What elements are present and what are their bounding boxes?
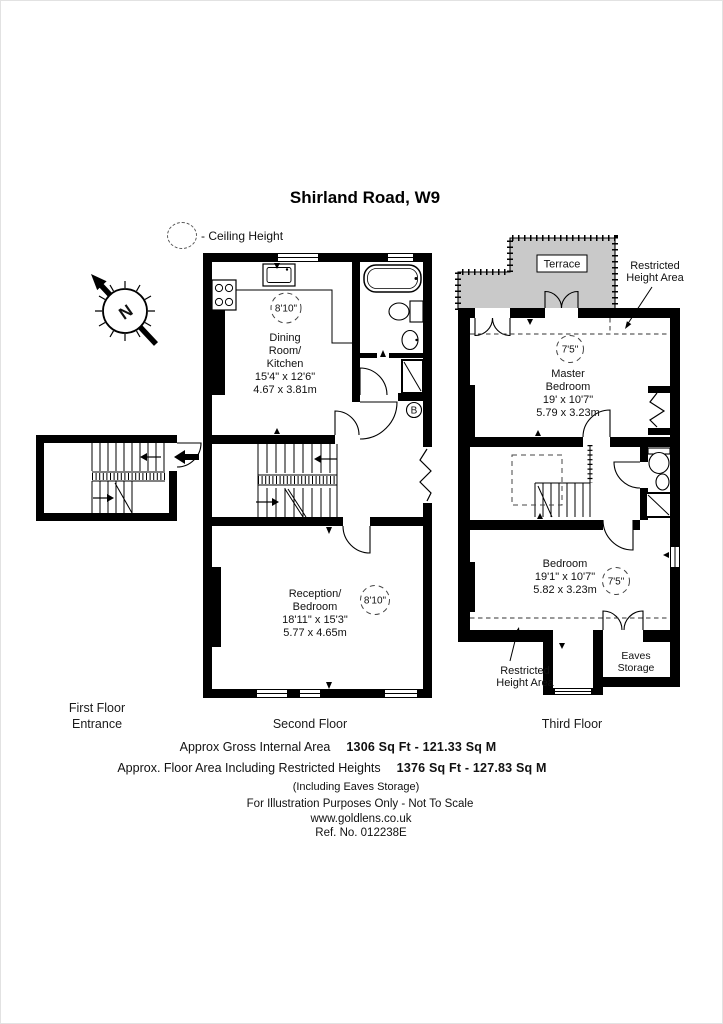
dining-room-label: Dining Room/ Kitchen 15'4" x 12'6" 4.67 … [253,332,317,396]
gross-area-value: 1306 Sq Ft - 121.33 Sq M [346,740,496,754]
svg-text:Bedroom: Bedroom [293,601,338,613]
gross-area-line: Approx Gross Internal Area1306 Sq Ft - 1… [180,740,497,754]
entrance-caption-line2: Entrance [69,716,125,732]
svg-text:Storage: Storage [618,662,655,674]
svg-text:Bedroom: Bedroom [543,558,588,570]
ceiling-height-legend-icon [167,222,197,249]
terrace-label: Terrace [544,259,581,271]
svg-text:Reception/: Reception/ [289,588,343,600]
third-floor-wall-break [648,386,670,435]
entrance-caption-line1: First Floor [69,700,125,716]
wall-markers [527,319,669,649]
bedroom-ceiling-height: 7'5" [603,568,630,595]
second-floor-stair-arrows [256,455,337,506]
svg-text:Dining: Dining [269,332,300,344]
svg-text:18'11" x 15'3": 18'11" x 15'3" [282,614,348,626]
compass-icon: N [78,256,173,361]
third-floor-caption: Third Floor [542,716,602,732]
svg-text:19'1" x 10'7": 19'1" x 10'7" [535,571,595,583]
toilet-icon [649,453,669,474]
svg-text:Restricted: Restricted [630,260,680,272]
svg-text:5.82 x 3.23m: 5.82 x 3.23m [533,584,597,596]
terrace: Terrace [458,238,615,310]
svg-text:8'10": 8'10" [364,596,387,607]
svg-text:15'4" x 12'6": 15'4" x 12'6" [255,371,315,383]
dining-ceiling-height: 8'10" [271,293,301,323]
reception-room-label: Reception/ Bedroom 18'11" x 15'3" 5.77 x… [282,588,348,639]
third-floor-bathroom [646,448,671,517]
restricted-area-label: Approx. Floor Area Including Restricted … [117,761,380,775]
svg-text:4.67 x 3.81m: 4.67 x 3.81m [253,384,317,396]
basin-icon [402,331,418,350]
second-floor-caption: Second Floor [273,716,347,732]
shower-icon [402,360,423,393]
floorplan-page: Shirland Road, W9 - Ceiling Height N [0,0,723,1024]
reference-number: Ref. No. 012238E [315,827,406,839]
including-eaves-note: (Including Eaves Storage) [293,781,420,793]
master-ceiling-height: 7'5" [557,336,584,363]
svg-text:Height Area: Height Area [496,677,554,689]
entrance-caption: First Floor Entrance [69,700,125,732]
eaves-storage-label: Eaves Storage [618,650,655,674]
master-bedroom-label: Master Bedroom 19' x 10'7" 5.79 x 3.23m [536,368,600,419]
gross-area-label: Approx Gross Internal Area [180,740,331,754]
entrance-stairs [92,443,165,513]
svg-text:Restricted: Restricted [500,665,550,677]
ceiling-height-legend-label: - Ceiling Height [201,229,283,243]
svg-text:8'10": 8'10" [275,304,298,315]
kitchen-sink-icon [263,264,295,286]
svg-text:Master: Master [551,368,585,380]
restricted-area-value: 1376 Sq Ft - 127.83 Sq M [397,761,547,775]
second-floor-wall-break [420,447,432,503]
svg-text:5.79 x 3.23m: 5.79 x 3.23m [536,407,600,419]
bedroom-label: Bedroom 19'1" x 10'7" 5.82 x 3.23m [533,558,597,596]
entrance-direction-arrow [174,450,199,464]
svg-text:7'5": 7'5" [608,577,625,588]
toilet-icon [389,301,423,322]
svg-text:Height Area: Height Area [626,272,684,284]
second-floor-plan: B 8' [203,253,432,698]
svg-text:Kitchen: Kitchen [267,358,304,370]
svg-text:19' x 10'7": 19' x 10'7" [543,394,593,406]
second-floor-stairs [258,444,337,517]
boiler-symbol: B [407,403,422,418]
basin-icon [656,474,669,490]
page-title: Shirland Road, W9 [290,188,440,208]
kitchen-hob-icon [212,280,236,310]
svg-text:5.77 x 4.65m: 5.77 x 4.65m [283,627,347,639]
third-floor-plan: Terrace [450,230,705,710]
svg-text:Bedroom: Bedroom [546,381,591,393]
third-floor-stairs [512,445,590,517]
svg-text:Room/: Room/ [269,345,302,357]
svg-text:7'5": 7'5" [562,345,579,356]
boiler-label: B [411,406,418,417]
reception-ceiling-height: 8'10" [361,586,390,615]
website-text: www.goldlens.co.uk [311,813,412,825]
restricted-area-line: Approx. Floor Area Including Restricted … [117,761,546,775]
disclaimer-note: For Illustration Purposes Only - Not To … [247,798,474,810]
svg-text:Eaves: Eaves [621,650,650,662]
bathtub-icon [364,265,421,292]
